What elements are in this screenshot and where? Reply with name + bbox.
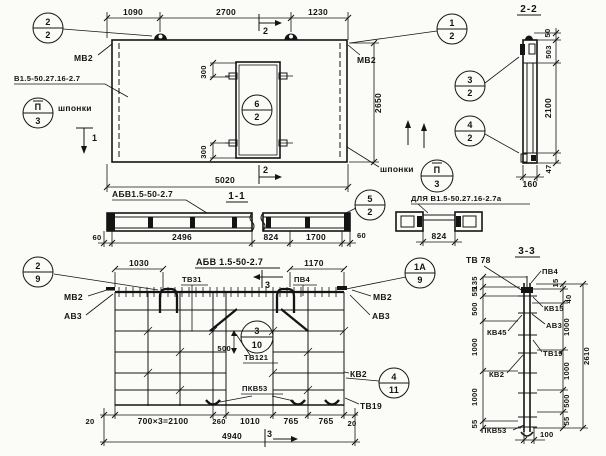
reinforcement-plan: АБВ 1.5-50-2.7 1030 1170 (23, 257, 435, 447)
av3-leader (532, 314, 545, 324)
dim-700x3: 700×3=2100 (138, 416, 189, 426)
dim-160: 160 (522, 179, 537, 189)
dim-1700: 1700 (306, 232, 326, 242)
callout-bottom: 2 (467, 88, 472, 98)
section-2-2-view: 2-2 50 503 2100 47 160 3 2 (455, 4, 561, 189)
label-abv: АБВ1.5-50-2.7 (112, 189, 173, 199)
kv45-leader (508, 315, 522, 331)
loop-hole (289, 35, 293, 39)
callout-bottom: 11 (389, 385, 399, 395)
callout-bottom: 2 (467, 133, 472, 143)
label-av3-right: АВ3 (372, 311, 390, 321)
dim-4940: 4940 (222, 431, 242, 441)
top-detail (520, 44, 525, 55)
dim-100: 100 (540, 430, 554, 439)
label-mv2-left: МВ2 (64, 292, 83, 302)
section-3-label: 3 (267, 429, 272, 439)
callout-6-2: 6 2 (242, 95, 272, 125)
label-mv2-left: МВ2 (74, 53, 93, 63)
callout-bottom: 3 (434, 179, 439, 189)
dim-60-right: 60 (357, 231, 366, 240)
label-variant: ДЛЯ В1.5-50.27.16-2.7а (411, 194, 502, 203)
section-member (523, 40, 537, 163)
mv2-left-leader (98, 44, 112, 55)
bottom-detail (531, 155, 536, 161)
dim-1000: 1000 (470, 388, 479, 406)
dim-2700: 2700 (216, 7, 236, 17)
dim-50: 50 (543, 28, 552, 37)
label-keys-right: шпонки (380, 164, 414, 174)
dim-765-b: 765 (318, 416, 333, 426)
callout-bottom: 2 (449, 31, 454, 41)
section-mark-1: 1 (76, 128, 97, 154)
beam-left (107, 213, 254, 231)
panel-drawing: 1090 2700 1230 5020 2650 300 300 1 (0, 0, 606, 456)
section-mark-1-arrows-right (405, 120, 427, 148)
dim-15: 15 (551, 278, 560, 288)
bottom-dim-chain: 20 700×3=2100 260 1010 765 765 20 (85, 406, 358, 428)
beam-right (261, 213, 350, 231)
callout-top: 5 (367, 194, 372, 204)
label-pv4: ПВ4 (542, 267, 559, 276)
section-2-label: 2 (263, 26, 268, 36)
plan-title: АБВ 1.5-50-2.7 (196, 257, 263, 267)
callout-top: 6 (254, 99, 259, 109)
section-3-3-view: 3-3 ТВ 78 ПВ4 КВ15 АВ3 ТВ19 КВ45 КВ2 ПКВ… (466, 246, 591, 444)
callout-keys-left: П 3 (23, 98, 53, 128)
section-1-1-view: АБВ1.5-50-2.7 1-1 60 2496 (92, 189, 530, 247)
callout-keys-right: П 3 (421, 160, 453, 192)
loop-detail (525, 36, 533, 41)
callout-1a-9: 1А 9 (346, 258, 435, 289)
section-1-1-dims: 60 2496 824 1700 60 (92, 231, 366, 247)
tv19-leader (345, 398, 359, 404)
dim-1000: 1000 (470, 338, 479, 356)
dim-55: 55 (470, 287, 479, 297)
member-walls (523, 63, 537, 153)
dim-1230: 1230 (308, 7, 328, 17)
dim-503: 503 (544, 45, 553, 59)
section-1-label: 1 (92, 133, 97, 143)
av3-leader (86, 294, 113, 315)
callout-3-2: 3 2 (455, 57, 519, 101)
section-title: 1-1 (228, 191, 245, 202)
callout-top: 1А (414, 262, 426, 272)
callout-bottom: 9 (417, 275, 422, 285)
callout-top: 4 (467, 120, 472, 130)
dim-100-group: 100 (515, 428, 554, 444)
dim-765-a: 765 (283, 416, 298, 426)
bottom-hook (521, 432, 533, 436)
section-mark-3-top: 3 (253, 270, 283, 290)
label-tv19: ТВ19 (360, 401, 382, 411)
dim-5020: 5020 (215, 175, 235, 185)
callout-top: 2 (45, 17, 50, 27)
dim-1000: 1000 (562, 318, 571, 336)
kv15-leader (533, 297, 543, 307)
label-mv2-right: МВ2 (373, 292, 392, 302)
edge-bar (524, 283, 530, 432)
dim-47: 47 (544, 164, 553, 173)
section-2-label: 2 (263, 165, 268, 175)
label-keys-left: шпонки (58, 103, 92, 113)
dim-55: 55 (470, 419, 479, 429)
dim-1030-group: 1030 (112, 258, 166, 288)
callout-bottom: 2 (367, 207, 372, 217)
dim-60-left: 60 (92, 233, 101, 242)
hook-bottom (325, 400, 339, 405)
drawing-sheet: 1090 2700 1230 5020 2650 300 300 1 (0, 0, 606, 456)
dim-300-top: 300 (199, 65, 208, 79)
label-tv78: ТВ 78 (466, 255, 491, 265)
callout-bottom: 2 (254, 112, 259, 122)
dim-500: 500 (562, 394, 571, 408)
label-kv2: КВ2 (350, 369, 367, 379)
label-tv31: ТВ31 (182, 275, 202, 284)
callout-top: 2 (35, 261, 40, 271)
callout-top: 3 (254, 326, 259, 336)
abv-leader (112, 200, 207, 213)
dim-2650: 2650 (373, 93, 383, 113)
callout-top: 1 (449, 18, 454, 28)
dim-500: 500 (217, 344, 231, 353)
section-title: 2-2 (520, 4, 537, 15)
dim-1170: 1170 (304, 258, 324, 268)
callout-top: П (434, 165, 441, 175)
dim-1010: 1010 (240, 416, 260, 426)
callout-2-2: 2 2 (33, 13, 152, 43)
dim-824: 824 (263, 232, 278, 242)
top-plan-view: 1090 2700 1230 5020 2650 300 300 1 (14, 7, 467, 192)
kv2-leader (507, 355, 523, 373)
callout-4-2: 4 2 (455, 116, 519, 153)
mv2-leader (88, 289, 110, 296)
dim-2100: 2100 (543, 98, 553, 118)
pkv53-leader (220, 394, 294, 402)
callout-5-2: 5 2 (346, 190, 385, 220)
mv2-right-leader (348, 45, 360, 55)
kv2-leader (344, 372, 349, 373)
section-3-label: 3 (265, 280, 270, 290)
label-tv121: ТВ121 (244, 353, 269, 362)
section-mark-2-top: 2 (259, 14, 282, 36)
label-av3: АВ3 (546, 321, 562, 330)
embed-mark-right (337, 286, 347, 290)
label-panel-mark: В1.5-50.27.16-2.7 (14, 74, 80, 83)
label-pkv53: ПКВ53 (242, 384, 268, 393)
callout-bottom: 9 (35, 274, 40, 284)
av3-leader (350, 295, 370, 315)
label-pkv53: ПКВ53 (481, 426, 507, 435)
dim-1090: 1090 (123, 7, 143, 17)
callout-top: П (35, 102, 42, 112)
dim-260: 260 (212, 417, 226, 426)
top-embed (521, 287, 533, 293)
callout-bottom: 2 (45, 30, 50, 40)
callout-bottom: 3 (35, 116, 40, 126)
dim-40: 40 (564, 294, 573, 303)
callout-top: 3 (467, 75, 472, 85)
dim-1030: 1030 (129, 258, 149, 268)
dim-2610: 2610 (582, 347, 591, 365)
pv4-leader (531, 271, 541, 283)
variant-detail: ДЛЯ В1.5-50.27.16-2.7а 824 (396, 194, 530, 246)
section-mark-2-bottom: 2 (259, 165, 282, 184)
section-mark-3-bottom: 3 (265, 429, 298, 447)
callout-1-2: 1 2 (350, 14, 467, 44)
loop-hole (159, 35, 163, 39)
dim-824-variant: 824 (431, 231, 446, 241)
diagonal-bar-left (210, 309, 237, 331)
dim-1000: 1000 (562, 362, 571, 380)
callout-bottom: 10 (252, 340, 263, 350)
label-pv4: ПВ4 (294, 275, 311, 284)
dim-2496: 2496 (172, 232, 192, 242)
mv2-leader (352, 290, 371, 296)
label-av3-left: АВ3 (64, 311, 82, 321)
dim-55: 55 (562, 416, 571, 426)
panel-mark-leader (14, 84, 128, 97)
label-mv2-right: МВ2 (357, 55, 376, 65)
dim-500-group: 500 (217, 330, 237, 354)
pv4-leader (293, 285, 317, 296)
length-dim: 5020 (104, 164, 351, 192)
dim-300-bottom: 300 (199, 145, 208, 159)
label-kv45: КВ45 (487, 328, 507, 337)
bottom-detail (521, 154, 527, 162)
section-title: 3-3 (518, 246, 535, 257)
callout-top: 4 (391, 372, 396, 382)
dim-500: 500 (470, 302, 479, 316)
top-detail (529, 44, 535, 54)
dim-20-left: 20 (85, 417, 94, 426)
